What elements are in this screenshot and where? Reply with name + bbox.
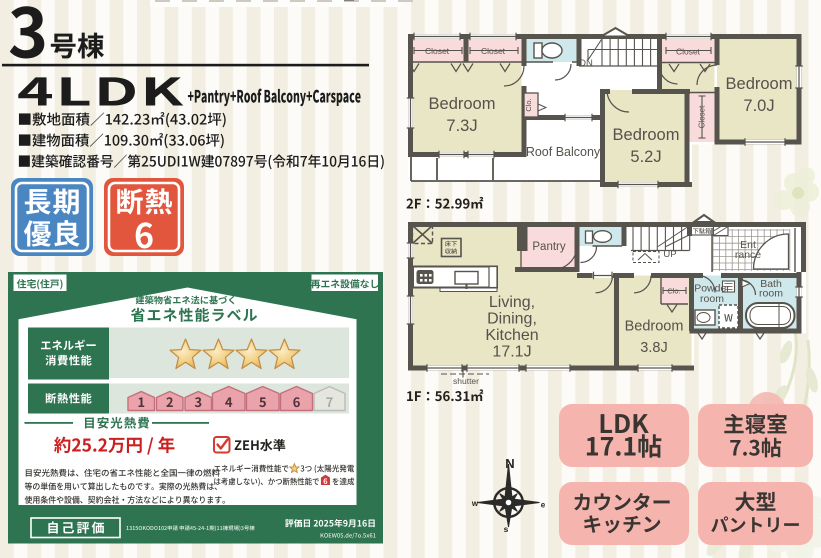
svg-text:rance: rance bbox=[735, 249, 761, 261]
svg-text:7.3J: 7.3J bbox=[446, 117, 477, 135]
svg-text:Roof Balcony: Roof Balcony bbox=[526, 145, 601, 159]
svg-text:N: N bbox=[505, 456, 514, 471]
svg-text:Bedroom: Bedroom bbox=[625, 319, 684, 335]
svg-text:s: s bbox=[504, 524, 509, 534]
svg-text:Dining,: Dining, bbox=[487, 311, 537, 328]
svg-text:w: w bbox=[471, 499, 479, 508]
svg-text:3.8J: 3.8J bbox=[640, 340, 667, 356]
svg-text:Pantry: Pantry bbox=[532, 241, 565, 253]
svg-text:Closet: Closet bbox=[676, 47, 701, 57]
svg-text:UP: UP bbox=[663, 249, 676, 260]
svg-text:Clo.: Clo. bbox=[667, 287, 680, 296]
svg-text:Bedroom: Bedroom bbox=[429, 95, 496, 113]
svg-text:Clo.: Clo. bbox=[524, 98, 533, 111]
svg-text:Bedroom: Bedroom bbox=[726, 75, 793, 93]
svg-text:7.0J: 7.0J bbox=[743, 97, 774, 115]
svg-text:DN: DN bbox=[579, 58, 593, 69]
svg-text:Bedroom: Bedroom bbox=[613, 126, 680, 144]
svg-text:room: room bbox=[759, 288, 783, 300]
svg-text:Kitchen: Kitchen bbox=[485, 327, 538, 344]
svg-text:Closet: Closet bbox=[425, 46, 450, 56]
svg-text:shutter: shutter bbox=[453, 376, 479, 386]
svg-text:e: e bbox=[541, 501, 546, 510]
svg-text:Closet: Closet bbox=[481, 46, 506, 56]
svg-text:5.2J: 5.2J bbox=[630, 148, 661, 166]
svg-text:Closet: Closet bbox=[698, 105, 707, 128]
svg-text:17.1J: 17.1J bbox=[492, 344, 531, 361]
svg-text:room: room bbox=[700, 293, 724, 305]
svg-text:Living,: Living, bbox=[489, 294, 535, 311]
